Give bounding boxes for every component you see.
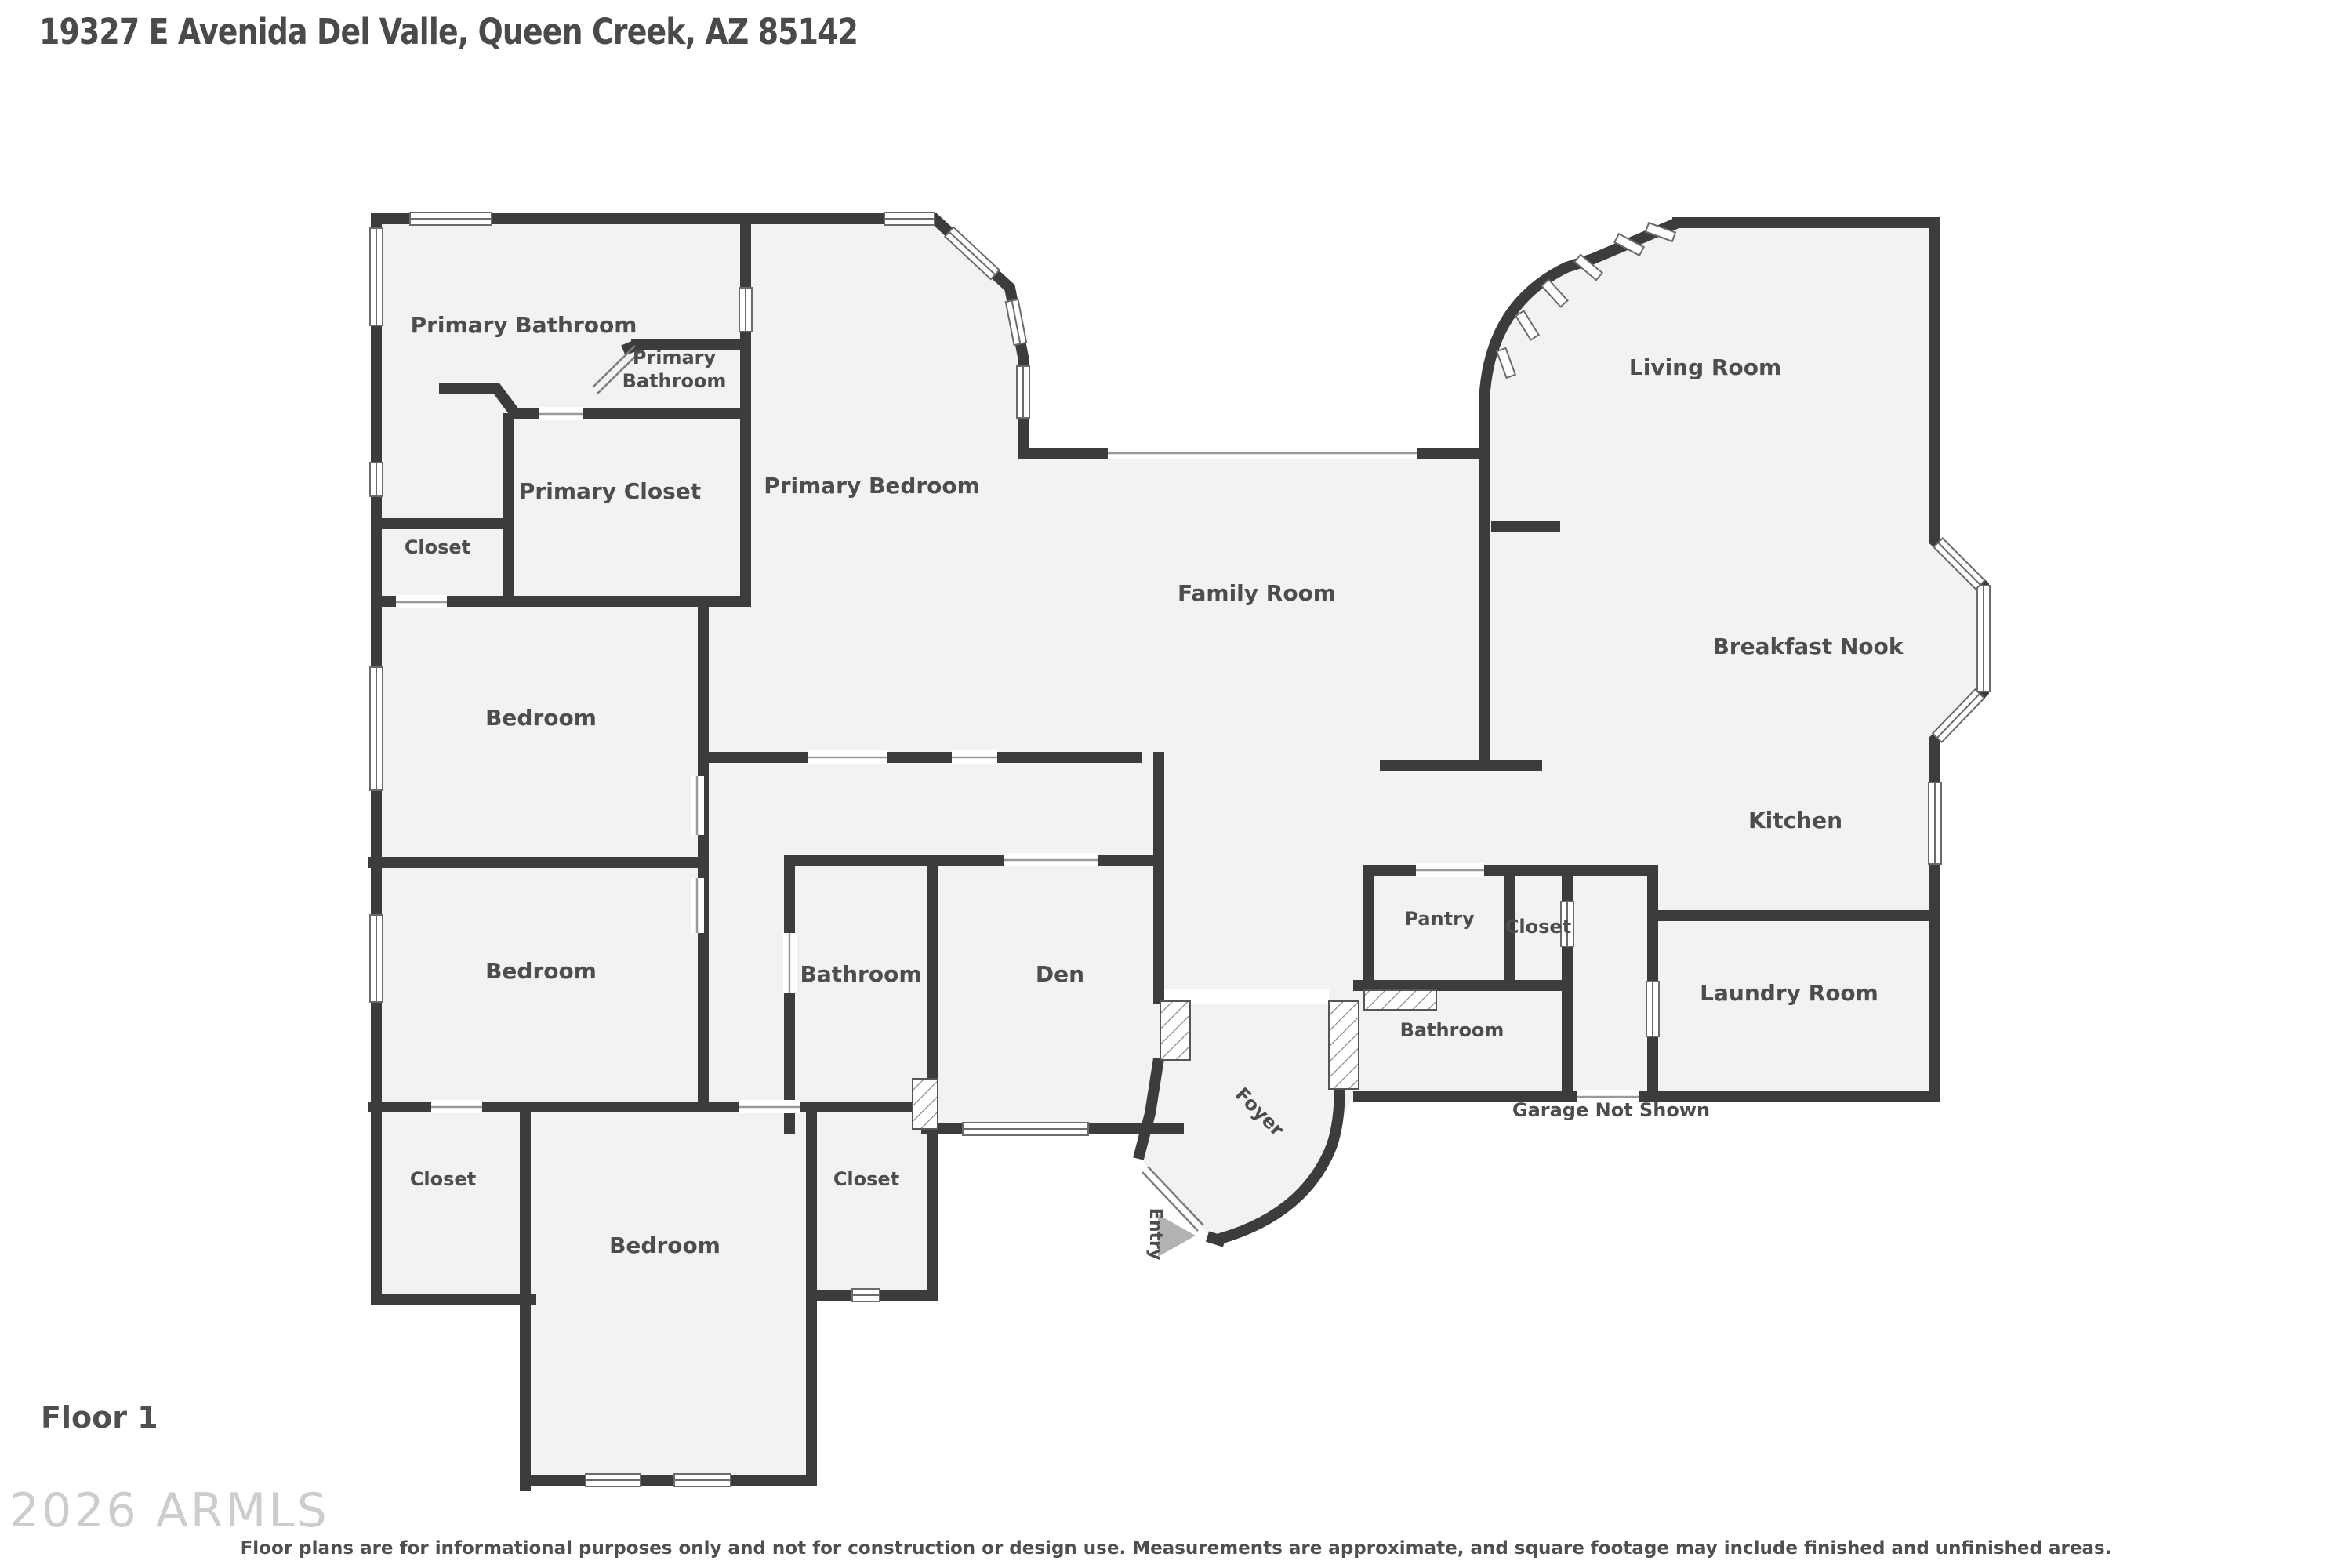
room-label-bedroom: Bedroom <box>485 705 597 731</box>
room-label-bathroom: Bathroom <box>800 961 921 987</box>
room-label-entry: Entry <box>1145 1208 1165 1260</box>
room-label-closet: Closet <box>1505 916 1571 938</box>
room-label-primary-bathroom: Primary Bathroom <box>411 312 637 338</box>
room-label-primary-closet: Primary Closet <box>519 478 701 504</box>
disclaimer-text: Floor plans are for informational purpos… <box>0 1538 2352 1559</box>
room-label-family-room: Family Room <box>1178 580 1336 606</box>
room-label-kitchen: Kitchen <box>1748 808 1842 833</box>
room-label-bathroom: Bathroom <box>1400 1019 1504 1041</box>
room-label-living-room: Living Room <box>1629 354 1781 380</box>
floor-label: Floor 1 <box>41 1400 158 1435</box>
floor-plan-svg: Primary BathroomPrimaryBathroomPrimary C… <box>0 0 2352 1568</box>
room-label-closet: Closet <box>833 1168 899 1190</box>
room-label-closet: Closet <box>410 1168 476 1190</box>
room-label-breakfast-nook: Breakfast Nook <box>1712 633 1904 659</box>
room-label-den: Den <box>1036 961 1084 987</box>
room-label-bedroom: Bedroom <box>609 1232 720 1258</box>
armls-watermark: 2026 ARMLS <box>9 1483 329 1538</box>
room-label-primary-bedroom: Primary Bedroom <box>764 473 980 499</box>
room-label-garage-not-shown: Garage Not Shown <box>1512 1099 1710 1121</box>
room-label-bedroom: Bedroom <box>485 958 597 984</box>
room-label-closet: Closet <box>405 536 470 558</box>
room-label-pantry: Pantry <box>1404 908 1475 930</box>
room-label-laundry-room: Laundry Room <box>1700 980 1878 1006</box>
